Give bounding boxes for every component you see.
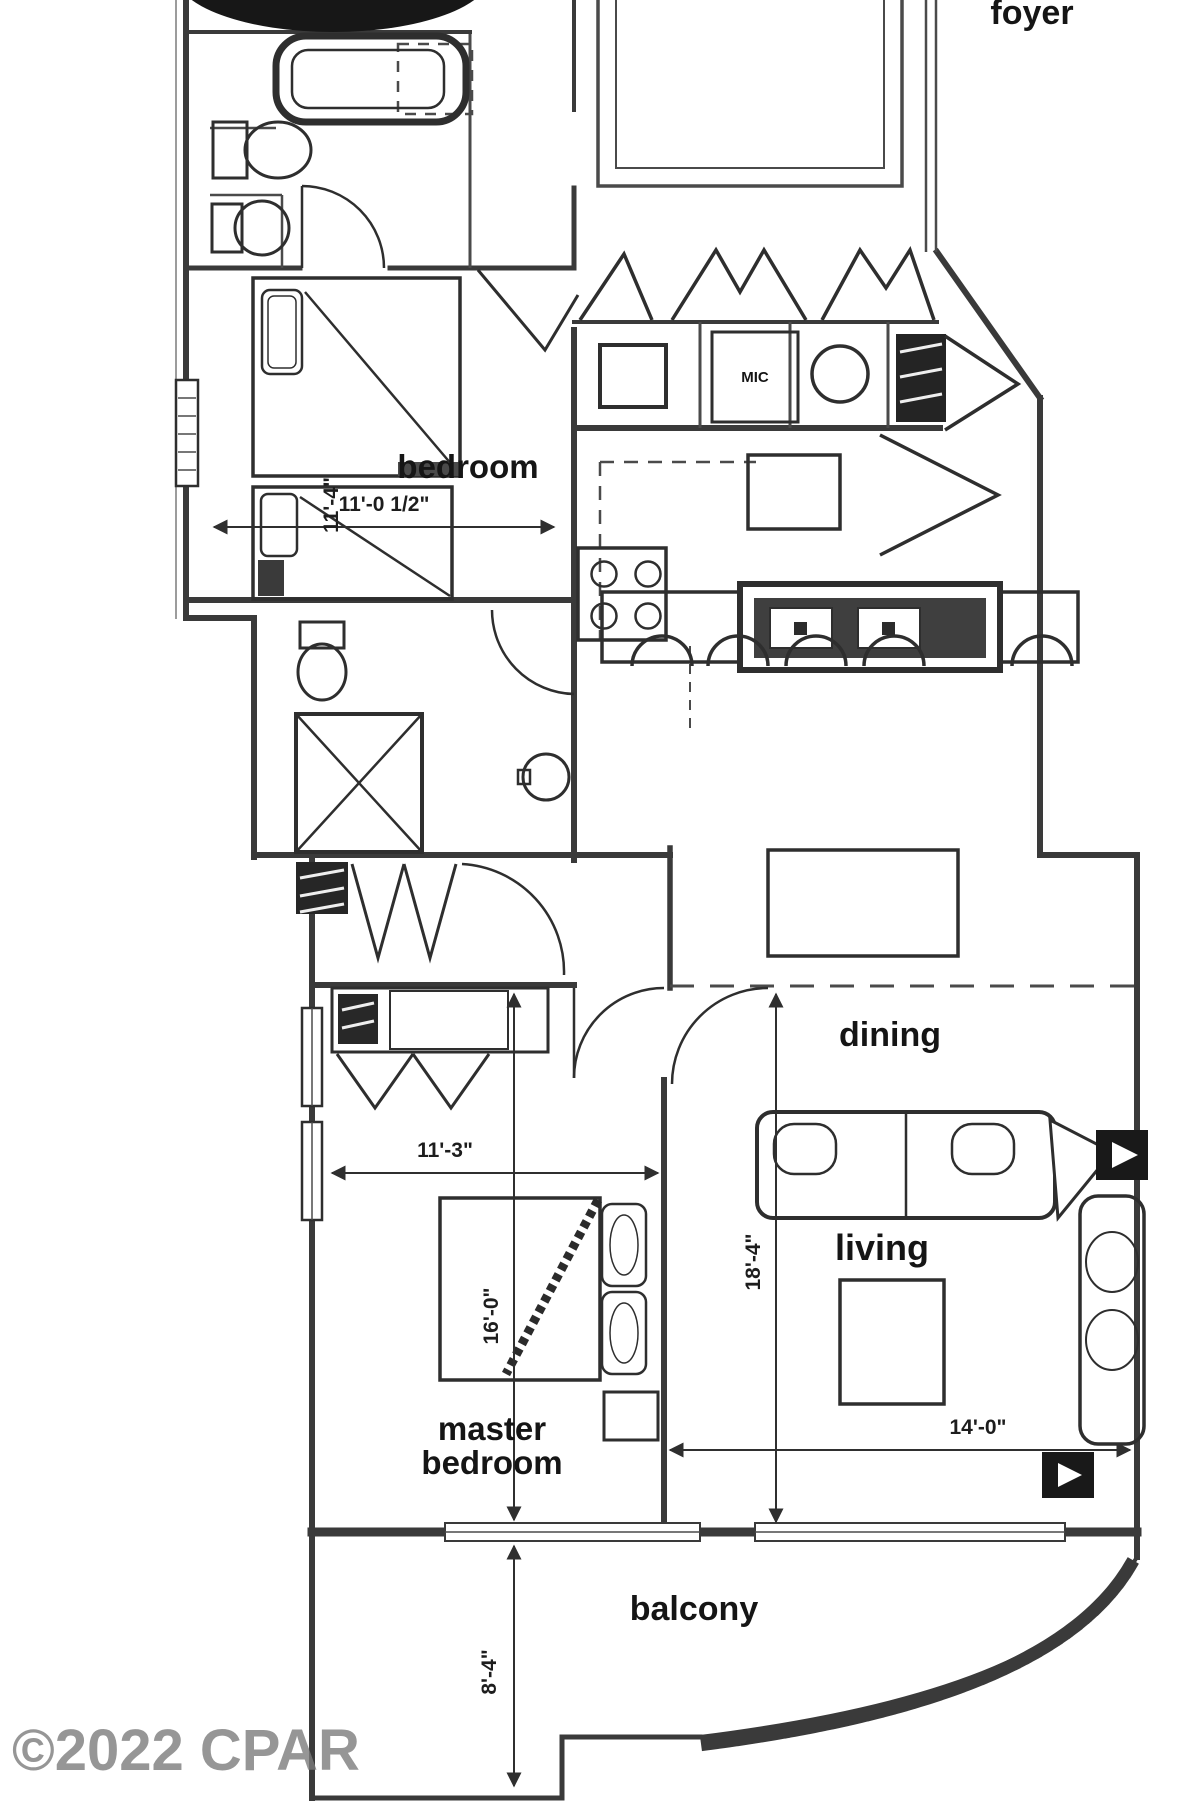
sink-1-pedestal bbox=[212, 204, 242, 252]
toilet-1-bowl bbox=[245, 122, 311, 178]
bed-1 bbox=[253, 278, 460, 476]
living-label: living bbox=[835, 1227, 929, 1268]
master-bed bbox=[440, 1198, 646, 1380]
louver-door-1 bbox=[580, 254, 652, 320]
living-width-dim: 14'-0" bbox=[950, 1416, 1007, 1439]
balcony-railing-hatch bbox=[706, 1566, 1130, 1744]
bathroom-1 bbox=[212, 36, 466, 268]
living-entry-door-arc bbox=[672, 988, 768, 1084]
bed-2-chest bbox=[258, 560, 284, 596]
closet-bifold-1 bbox=[352, 864, 404, 958]
speaker-1 bbox=[1096, 1130, 1148, 1180]
dining-label: dining bbox=[839, 1016, 941, 1054]
washer bbox=[600, 345, 666, 407]
copyright-watermark: ©2022 CPAR bbox=[12, 1718, 360, 1783]
louver-door-3 bbox=[822, 250, 934, 320]
foyer-area bbox=[175, 0, 902, 186]
floor-plan-drawing: MIC bbox=[0, 0, 1200, 1810]
living-height-dim: 18'-4" bbox=[742, 1234, 765, 1291]
master-door-arc bbox=[574, 988, 664, 1078]
ironing-cabinet bbox=[296, 862, 348, 914]
master-bedroom-label-line2: bedroom bbox=[421, 1444, 562, 1481]
foyer-closet-outline bbox=[598, 0, 902, 186]
balcony-label: balcony bbox=[630, 1590, 759, 1628]
master-closet-bifold-2 bbox=[413, 1054, 489, 1108]
bathroom-2 bbox=[296, 610, 574, 852]
foyer-label: foyer bbox=[990, 0, 1073, 32]
kitchen-island bbox=[602, 584, 1078, 670]
master-closet-bifold-1 bbox=[337, 1054, 413, 1108]
dining-area bbox=[670, 850, 1135, 986]
master-pillow-2 bbox=[602, 1292, 646, 1374]
room-labels: foyer bedroom dining living master bedro… bbox=[397, 0, 1073, 1628]
louver-door-2 bbox=[672, 250, 806, 320]
nightstand bbox=[604, 1392, 658, 1440]
pantry-door-swing bbox=[880, 435, 998, 555]
counter-dashed bbox=[600, 462, 756, 640]
hall-door-arc bbox=[462, 864, 564, 975]
master-bedroom-area bbox=[302, 988, 768, 1440]
closet-bifold-2 bbox=[404, 864, 456, 958]
dining-table bbox=[768, 850, 958, 956]
bedroom-height-dim: 11'-4" bbox=[320, 477, 343, 533]
toilet-1-tank bbox=[213, 122, 247, 178]
scan-blackout-blob bbox=[175, 0, 491, 32]
mic-label: MIC bbox=[741, 369, 769, 386]
bedroom-label: bedroom bbox=[397, 448, 538, 485]
sofa bbox=[757, 1112, 1112, 1218]
master-pillow-1 bbox=[602, 1204, 646, 1286]
speaker-2 bbox=[1042, 1452, 1094, 1498]
bedroom-door-fold bbox=[478, 270, 578, 350]
master-width-dim: 11'-3" bbox=[417, 1139, 473, 1162]
refrigerator bbox=[748, 455, 840, 529]
toilet-2-bowl bbox=[298, 644, 346, 700]
water-heater bbox=[896, 334, 946, 422]
master-bedroom-label-line1: master bbox=[438, 1410, 546, 1447]
master-closet bbox=[332, 988, 548, 1108]
balcony-depth-dim: 8'-4" bbox=[478, 1649, 501, 1694]
hall-closet bbox=[296, 862, 564, 975]
living-area bbox=[757, 1112, 1148, 1498]
stove bbox=[578, 548, 666, 640]
dryer-drum bbox=[812, 346, 868, 402]
shower bbox=[296, 714, 422, 852]
floor-plan-image: MIC bbox=[0, 0, 1200, 1810]
bedroom-width-dim: 11'-0 1/2" bbox=[339, 493, 430, 516]
master-bed-throw bbox=[506, 1200, 598, 1374]
bedroom-area bbox=[176, 270, 578, 599]
kitchen-area bbox=[578, 435, 1078, 736]
bath-2-door-arc bbox=[492, 610, 574, 694]
bed-2-pillow bbox=[261, 494, 297, 556]
coffee-table bbox=[840, 1280, 944, 1404]
master-height-dim: 16'-0" bbox=[480, 1288, 503, 1345]
bath-1-door-arc bbox=[302, 186, 384, 268]
foyer-closet-inner bbox=[616, 0, 884, 168]
